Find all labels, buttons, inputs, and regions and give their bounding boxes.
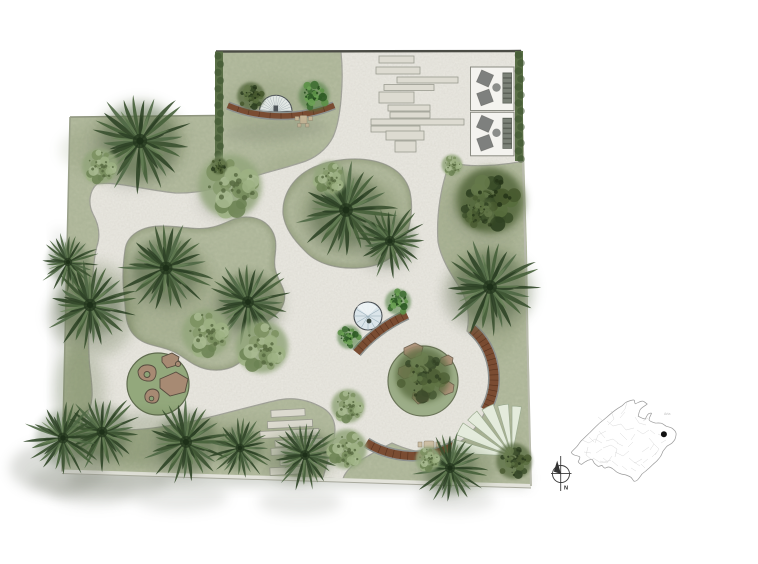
- svg-text:Arta: Arta: [664, 412, 670, 416]
- svg-text:N: N: [564, 486, 568, 492]
